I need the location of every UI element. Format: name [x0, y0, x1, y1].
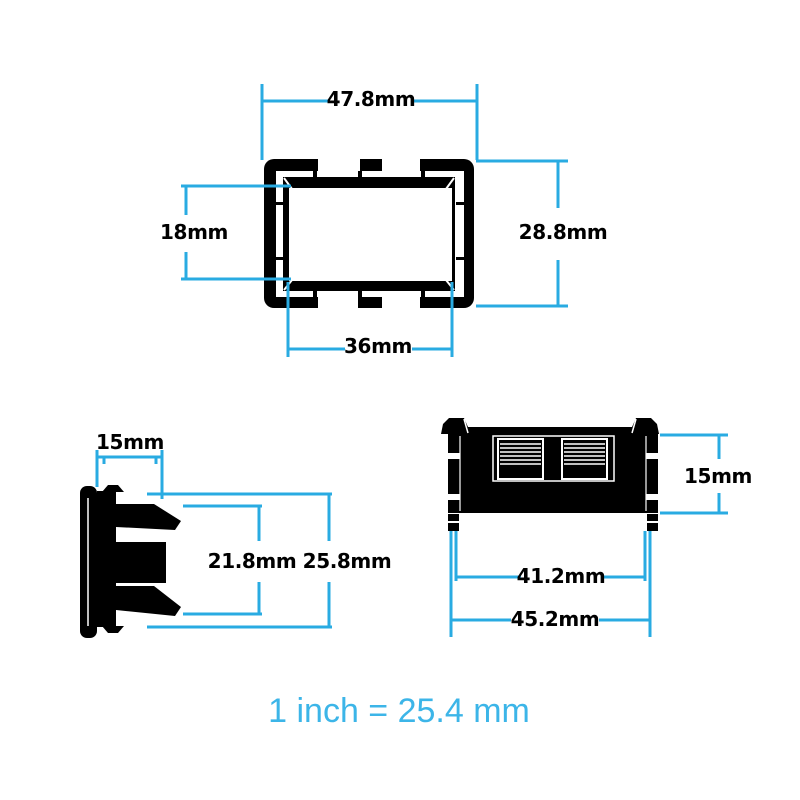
dim-label-rear-body-depth: 15mm: [684, 466, 752, 486]
dim-label-front-opening-width: 36mm: [344, 336, 412, 356]
front-view-drawing: [264, 159, 474, 308]
dim-label-front-outer-height: 28.8mm: [519, 222, 608, 242]
dim-label-front-opening-height: 18mm: [160, 222, 228, 242]
dim-label-side-clip-span: 21.8mm: [208, 551, 297, 571]
side-view-drawing: [80, 485, 181, 638]
dim-label-side-overall-height: 25.8mm: [303, 551, 392, 571]
unit-conversion-note: 1 inch = 25.4 mm: [268, 694, 530, 728]
dim-label-rear-outer-width: 45.2mm: [511, 609, 600, 629]
dimension-diagram: 47.8mm 28.8mm 18mm 36mm 15mm 21.8mm 25.8…: [0, 0, 800, 800]
dim-label-front-outer-width: 47.8mm: [327, 89, 416, 109]
rear-view-drawing: [441, 418, 659, 531]
dim-label-rear-inner-width: 41.2mm: [517, 566, 606, 586]
technical-drawing-canvas: [0, 0, 800, 800]
dim-label-side-bezel-depth: 15mm: [96, 432, 164, 452]
